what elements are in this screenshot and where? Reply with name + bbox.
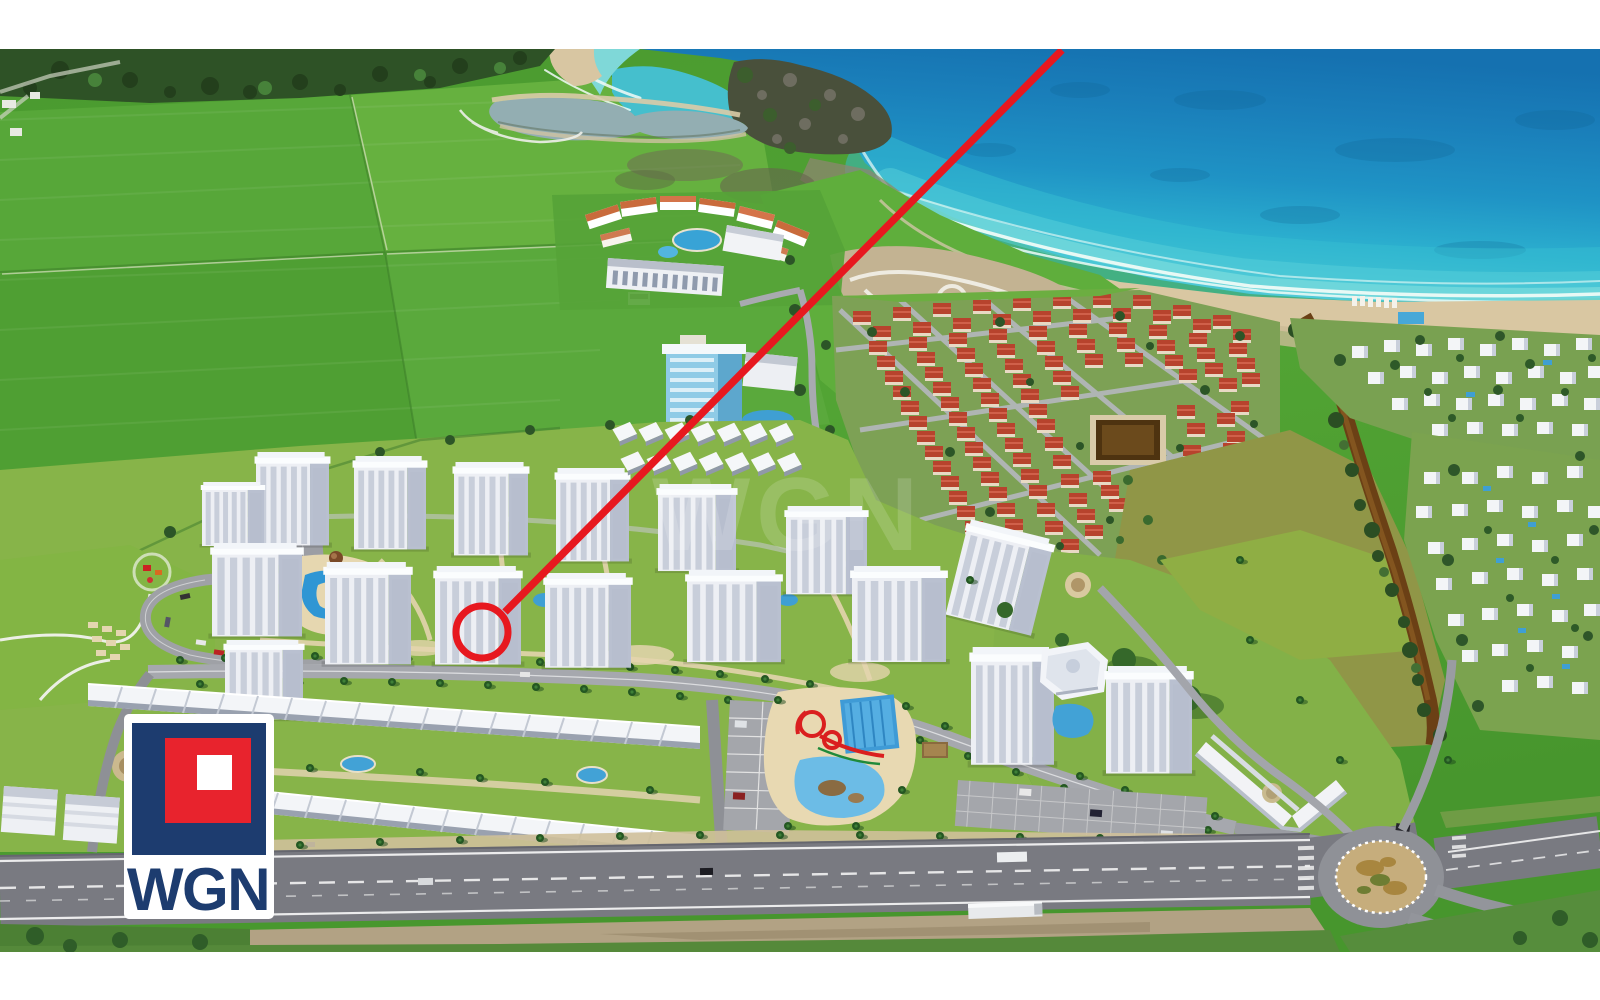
svg-text:WGN: WGN xyxy=(652,457,924,573)
svg-text:WGN: WGN xyxy=(127,856,269,923)
